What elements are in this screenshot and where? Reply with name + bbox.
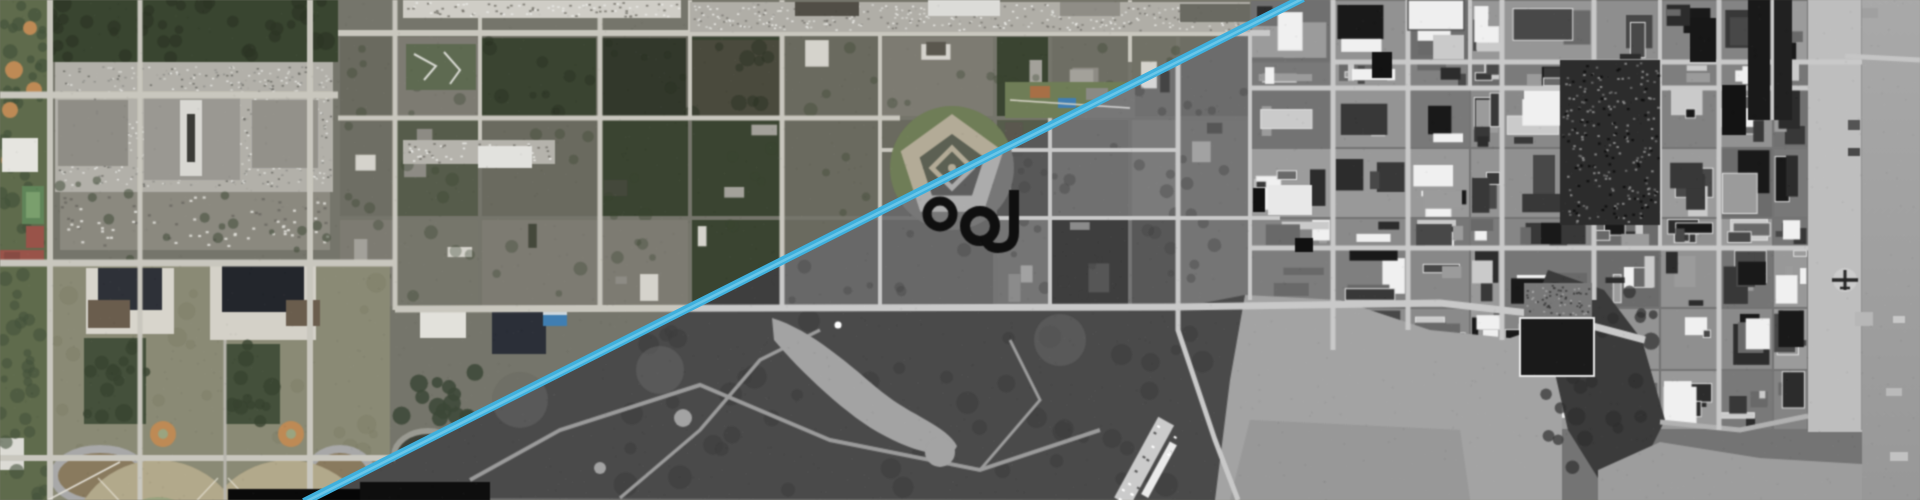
satellite-map-view[interactable] [0, 0, 1920, 500]
